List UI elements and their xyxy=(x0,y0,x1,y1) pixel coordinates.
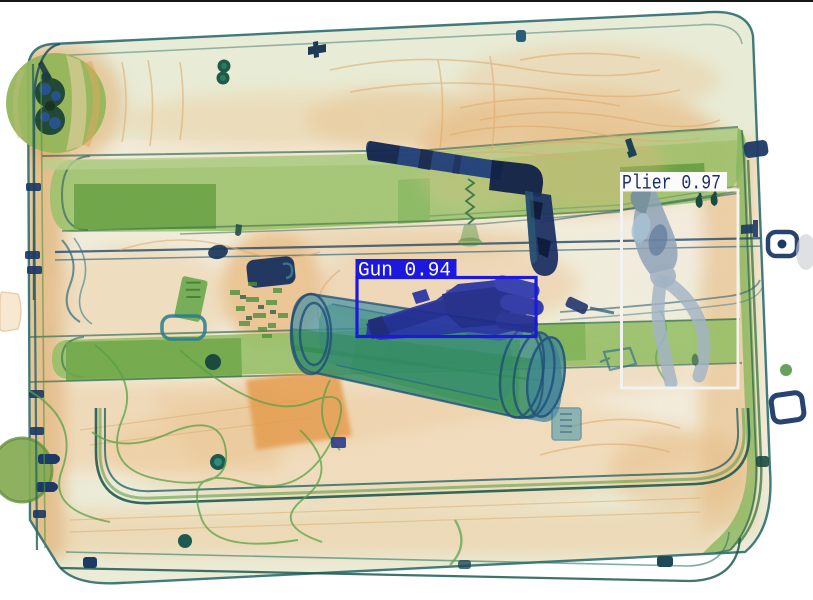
svg-text:Gun 0.94: Gun 0.94 xyxy=(358,260,451,283)
svg-text:Plier 0.97: Plier 0.97 xyxy=(622,173,721,196)
